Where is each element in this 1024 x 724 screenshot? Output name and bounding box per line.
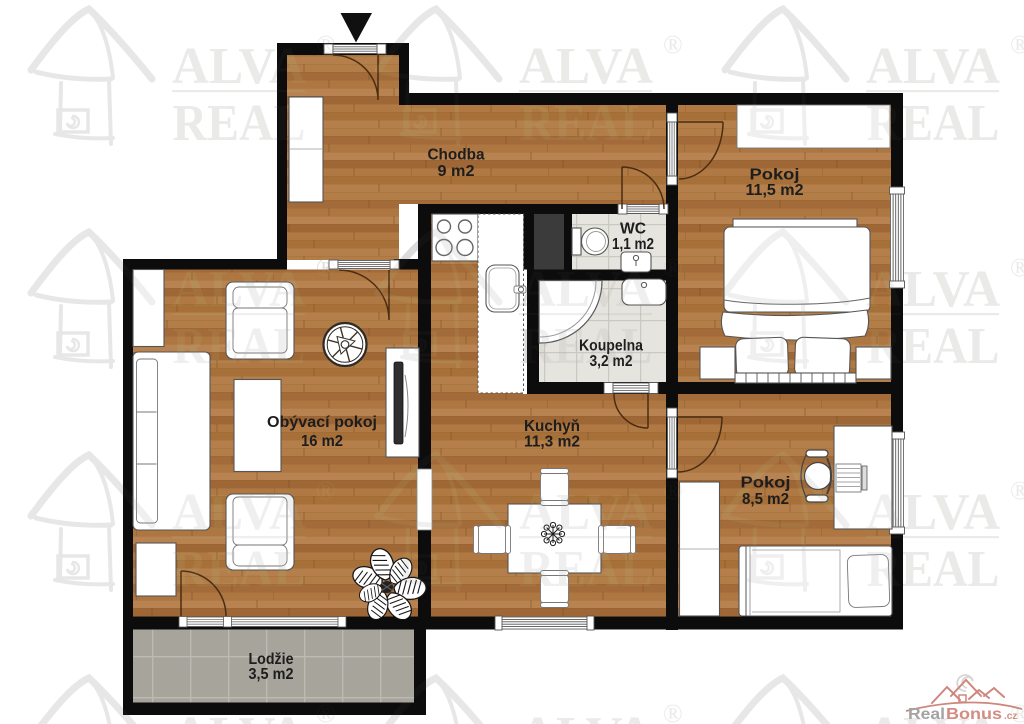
svg-text:REAL: REAL bbox=[173, 541, 306, 598]
svg-text:ALVA: ALVA bbox=[866, 38, 1000, 95]
svg-text:3,5 m2: 3,5 m2 bbox=[249, 666, 294, 683]
svg-text:®: ® bbox=[663, 30, 683, 59]
svg-text:REAL: REAL bbox=[173, 318, 306, 375]
svg-text:REAL: REAL bbox=[520, 541, 653, 598]
svg-text:ALVA: ALVA bbox=[519, 707, 653, 724]
svg-text:Chodba: Chodba bbox=[428, 147, 485, 164]
svg-text:ALVA: ALVA bbox=[172, 261, 306, 318]
svg-text:Bonus: Bonus bbox=[946, 706, 1002, 723]
svg-text:Obývací pokoj: Obývací pokoj bbox=[267, 414, 377, 431]
svg-text:®: ® bbox=[316, 253, 336, 282]
svg-text:®: ® bbox=[663, 476, 683, 505]
svg-text:®: ® bbox=[316, 476, 336, 505]
svg-text:11,5 m2: 11,5 m2 bbox=[746, 182, 804, 199]
svg-text:REAL: REAL bbox=[520, 318, 653, 375]
svg-text:.cz: .cz bbox=[1004, 711, 1017, 722]
svg-text:8,5 m2: 8,5 m2 bbox=[742, 491, 789, 508]
svg-text:ALVA: ALVA bbox=[519, 484, 653, 541]
svg-text:Real: Real bbox=[908, 706, 945, 723]
svg-text:Pokoj: Pokoj bbox=[750, 167, 800, 184]
svg-text:REAL: REAL bbox=[520, 95, 653, 152]
svg-text:9 m2: 9 m2 bbox=[438, 163, 475, 180]
svg-text:Kuchyň: Kuchyň bbox=[524, 418, 580, 435]
svg-text:®: ® bbox=[1010, 30, 1024, 59]
svg-text:ALVA: ALVA bbox=[519, 261, 653, 318]
svg-text:ALVA: ALVA bbox=[172, 484, 306, 541]
svg-text:WC: WC bbox=[620, 221, 646, 238]
svg-text:16 m2: 16 m2 bbox=[301, 433, 343, 450]
svg-text:1,1 m2: 1,1 m2 bbox=[612, 236, 654, 253]
svg-text:®: ® bbox=[1010, 476, 1024, 505]
svg-text:®: ® bbox=[1010, 253, 1024, 282]
svg-text:®: ® bbox=[663, 253, 683, 282]
svg-text:ALVA: ALVA bbox=[519, 38, 653, 95]
svg-text:11,3 m2: 11,3 m2 bbox=[524, 434, 580, 451]
svg-text:®: ® bbox=[663, 699, 683, 724]
